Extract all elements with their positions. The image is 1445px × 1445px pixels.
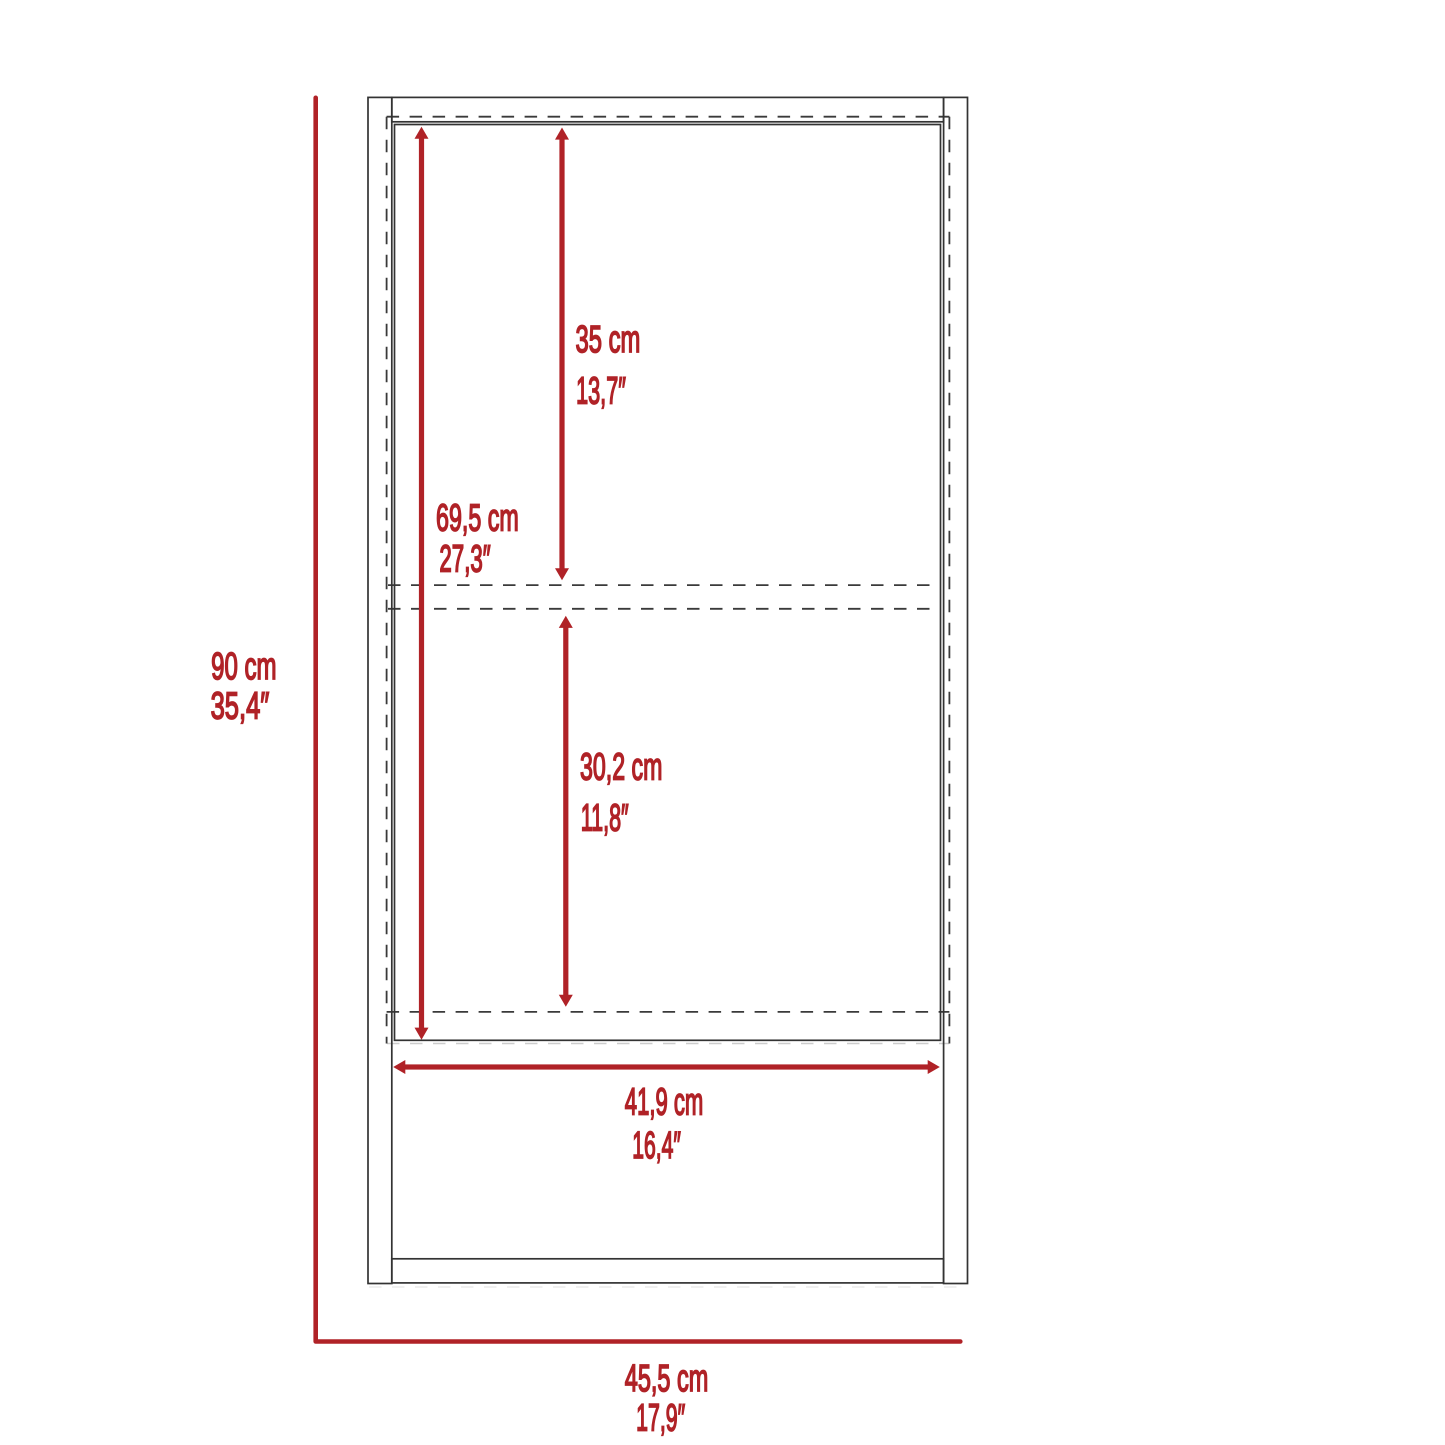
svg-text:35,4″: 35,4″: [211, 686, 270, 728]
svg-text:11,8″: 11,8″: [581, 798, 629, 840]
svg-text:90 cm: 90 cm: [211, 646, 276, 688]
svg-text:13,7″: 13,7″: [576, 371, 626, 413]
svg-text:16,4″: 16,4″: [632, 1125, 681, 1167]
svg-text:30,2 cm: 30,2 cm: [580, 746, 662, 788]
svg-text:35 cm: 35 cm: [576, 319, 641, 361]
svg-text:45,5 cm: 45,5 cm: [625, 1358, 709, 1400]
svg-text:69,5 cm: 69,5 cm: [436, 497, 519, 539]
svg-text:41,9 cm: 41,9 cm: [625, 1081, 704, 1123]
svg-text:27,3″: 27,3″: [439, 539, 490, 581]
svg-text:17,9″: 17,9″: [636, 1397, 685, 1439]
